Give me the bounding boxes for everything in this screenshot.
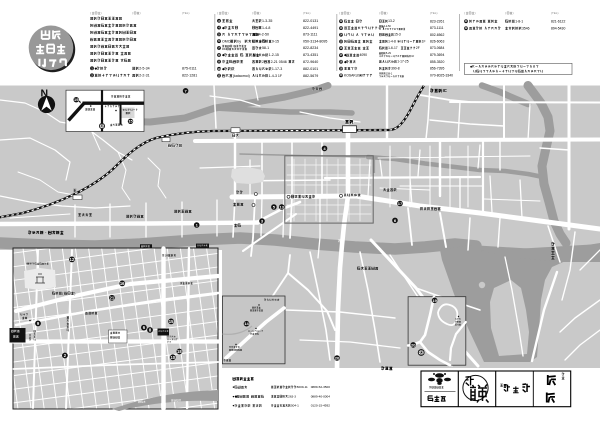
svg-text:873-0684: 873-0684 bbox=[430, 46, 444, 50]
svg-text:16: 16 bbox=[120, 281, 125, 286]
svg-text:⑩: ⑩ bbox=[26, 262, 28, 265]
svg-text:1-4-8: 1-4-8 bbox=[262, 26, 270, 30]
svg-text:13-2: 13-2 bbox=[388, 19, 395, 23]
svg-text:(: ( bbox=[464, 11, 465, 15]
svg-text:KOSAKUSO: KOSAKUSO bbox=[344, 73, 363, 77]
svg-text:1-6-17: 1-6-17 bbox=[388, 46, 398, 50]
svg-text:22: 22 bbox=[419, 350, 424, 355]
svg-text:13: 13 bbox=[279, 204, 284, 209]
svg-text:1-4-8: 1-4-8 bbox=[388, 39, 396, 43]
svg-text:20: 20 bbox=[411, 342, 416, 347]
svg-text:14: 14 bbox=[244, 321, 249, 326]
svg-text:5-29: 5-29 bbox=[386, 52, 392, 55]
svg-text:821-6122: 821-6122 bbox=[551, 19, 565, 23]
svg-text:875-0111: 875-0111 bbox=[182, 66, 197, 70]
svg-text:(TEL): (TEL) bbox=[182, 11, 190, 15]
svg-text:894-5430: 894-5430 bbox=[551, 26, 565, 30]
svg-text:◆: ◆ bbox=[344, 60, 347, 64]
svg-text:070-8025-3340: 070-8025-3340 bbox=[430, 73, 453, 77]
svg-text:): ) bbox=[387, 11, 388, 15]
svg-text:1-4-3 1F: 1-4-3 1F bbox=[269, 74, 283, 78]
svg-text:17: 17 bbox=[398, 201, 403, 206]
svg-text:1F: 1F bbox=[422, 39, 426, 43]
svg-text:20: 20 bbox=[335, 355, 340, 360]
svg-text:IC: IC bbox=[443, 88, 447, 93]
svg-text:10: 10 bbox=[170, 355, 175, 360]
svg-text:3546: 3546 bbox=[522, 26, 530, 30]
svg-text:21: 21 bbox=[110, 295, 115, 300]
svg-text:): ) bbox=[513, 11, 514, 15]
svg-text:19: 19 bbox=[432, 298, 437, 303]
svg-text:by: by bbox=[237, 39, 241, 43]
svg-text:8009-11: 8009-11 bbox=[297, 385, 308, 389]
svg-text:2-21 0546: 2-21 0546 bbox=[271, 60, 287, 64]
svg-text:4-2-50: 4-2-50 bbox=[384, 25, 392, 28]
svg-text:(: ( bbox=[252, 11, 253, 15]
svg-text:): ) bbox=[140, 11, 141, 15]
svg-text:(: ( bbox=[505, 11, 506, 15]
svg-text:873-1111: 873-1111 bbox=[303, 33, 317, 37]
svg-text:504-1: 504-1 bbox=[291, 404, 299, 408]
svg-text:802-6562: 802-6562 bbox=[430, 33, 444, 37]
svg-text:1-17-3: 1-17-3 bbox=[272, 67, 282, 71]
svg-text:263-3: 263-3 bbox=[288, 394, 296, 398]
svg-text:15: 15 bbox=[169, 319, 174, 324]
svg-text:JR: JR bbox=[165, 253, 168, 257]
svg-text:050-3134-8095: 050-3134-8095 bbox=[303, 39, 327, 43]
svg-text:): ) bbox=[74, 291, 75, 295]
svg-text:(: ( bbox=[217, 11, 218, 15]
svg-text:10: 10 bbox=[100, 123, 104, 128]
svg-text:): ) bbox=[260, 11, 261, 15]
svg-text:(: ( bbox=[339, 11, 340, 15]
svg-text:826-6063: 826-6063 bbox=[430, 39, 444, 43]
svg-text:1-3-35: 1-3-35 bbox=[262, 19, 272, 23]
svg-text:11: 11 bbox=[218, 74, 221, 78]
svg-text:856-7395: 856-7395 bbox=[430, 67, 444, 71]
svg-text:1-8-1: 1-8-1 bbox=[515, 19, 523, 23]
svg-text:2F: 2F bbox=[416, 46, 420, 50]
svg-text:822-0131: 822-0131 bbox=[303, 19, 318, 23]
svg-text:(TEL): (TEL) bbox=[551, 11, 559, 15]
svg-text:58-1: 58-1 bbox=[262, 46, 269, 50]
svg-text:(: ( bbox=[90, 11, 91, 15]
svg-text:OMO7: OMO7 bbox=[222, 39, 233, 43]
svg-text:(: ( bbox=[379, 11, 380, 15]
svg-text:4090: 4090 bbox=[360, 53, 368, 57]
svg-text:822-1281: 822-1281 bbox=[182, 73, 197, 77]
svg-text:): ) bbox=[101, 11, 102, 15]
svg-text:0120-15-4592: 0120-15-4592 bbox=[311, 404, 331, 408]
svg-text:1-2-15: 1-2-15 bbox=[269, 53, 279, 57]
svg-text:(kataomoi): (kataomoi) bbox=[233, 74, 250, 78]
svg-text:(TEL): (TEL) bbox=[303, 11, 311, 15]
svg-text:): ) bbox=[475, 11, 476, 15]
svg-text:873-4351: 873-4351 bbox=[303, 53, 318, 57]
svg-text:879-3694: 879-3694 bbox=[430, 53, 444, 57]
svg-text:): ) bbox=[350, 11, 351, 15]
svg-text:): ) bbox=[228, 11, 229, 15]
svg-text:882-5679: 882-5679 bbox=[303, 74, 318, 78]
svg-text:9-15: 9-15 bbox=[272, 39, 279, 43]
svg-text:872-9640: 872-9640 bbox=[303, 60, 318, 64]
svg-text:822-4491: 822-4491 bbox=[303, 26, 318, 30]
svg-text:822-8234: 822-8234 bbox=[303, 46, 318, 50]
svg-text:4-2-50: 4-2-50 bbox=[259, 33, 269, 37]
svg-text:(: ( bbox=[132, 11, 133, 15]
svg-text:1-17-25: 1-17-25 bbox=[397, 60, 409, 64]
svg-text:2-5-34: 2-5-34 bbox=[139, 66, 149, 70]
svg-text:RKC: RKC bbox=[222, 47, 228, 51]
svg-text:390-8: 390-8 bbox=[391, 67, 400, 71]
svg-text:15-3: 15-3 bbox=[394, 33, 401, 37]
svg-text:18: 18 bbox=[177, 349, 182, 354]
svg-text:●◆: ●◆ bbox=[233, 395, 238, 399]
svg-text:2-2-31: 2-2-31 bbox=[139, 73, 149, 77]
svg-text:882-0101: 882-0101 bbox=[303, 67, 318, 71]
svg-text:873-1111: 873-1111 bbox=[430, 26, 444, 30]
svg-text:855-3520: 855-3520 bbox=[430, 60, 444, 64]
svg-text:●: ● bbox=[233, 404, 235, 408]
svg-text:823-2261: 823-2261 bbox=[430, 19, 444, 23]
svg-text:◆: ◆ bbox=[344, 53, 347, 57]
svg-text:1F: 1F bbox=[411, 55, 414, 58]
svg-text:158-1: 158-1 bbox=[386, 72, 393, 75]
svg-text:0889-40-0004: 0889-40-0004 bbox=[311, 394, 331, 398]
svg-text:10: 10 bbox=[217, 67, 221, 71]
svg-text:2: 2 bbox=[262, 60, 264, 64]
svg-text:●: ● bbox=[233, 385, 235, 389]
svg-text:12: 12 bbox=[70, 257, 75, 262]
svg-text:0889-52-3500: 0889-52-3500 bbox=[311, 385, 331, 389]
svg-text:(TEL): (TEL) bbox=[430, 11, 438, 15]
